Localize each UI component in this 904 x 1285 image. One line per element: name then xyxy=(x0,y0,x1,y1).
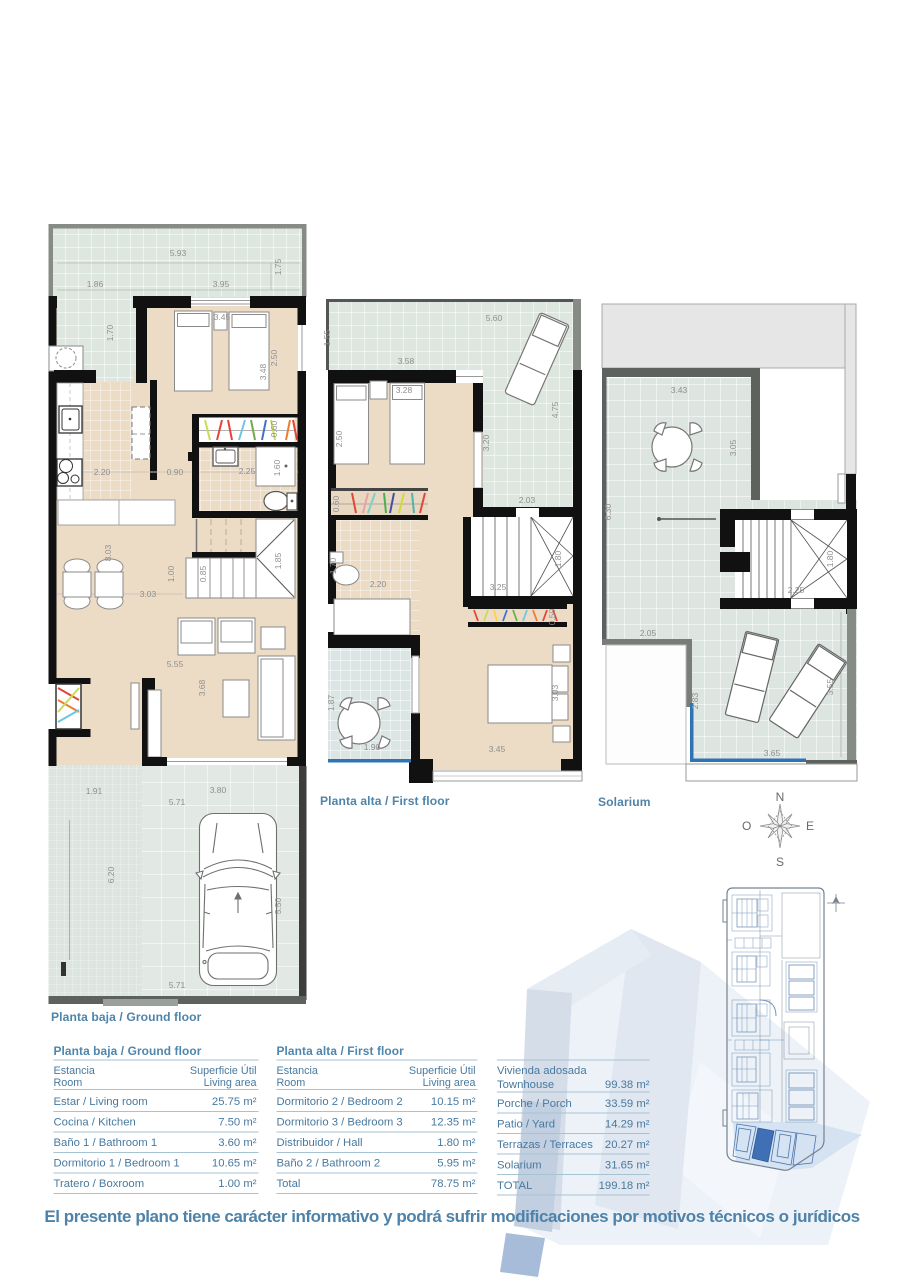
svg-text:3.48: 3.48 xyxy=(258,363,268,380)
svg-text:Terrazas / Terraces: Terrazas / Terraces xyxy=(497,1139,593,1151)
svg-text:3.65: 3.65 xyxy=(764,748,781,758)
svg-text:3.25: 3.25 xyxy=(490,582,507,592)
svg-text:7.50 m²: 7.50 m² xyxy=(218,1117,257,1129)
svg-text:3.68: 3.68 xyxy=(197,679,207,696)
svg-text:3.45: 3.45 xyxy=(214,312,231,322)
svg-text:Baño 2 / Bathroom 2: Baño 2 / Bathroom 2 xyxy=(277,1158,381,1170)
svg-text:Porche / Porch: Porche / Porch xyxy=(497,1098,572,1110)
svg-text:0.90: 0.90 xyxy=(167,467,184,477)
svg-text:1.80: 1.80 xyxy=(825,550,835,567)
svg-text:20.27 m²: 20.27 m² xyxy=(605,1139,650,1151)
svg-text:Room: Room xyxy=(54,1077,83,1089)
svg-text:Room: Room xyxy=(277,1077,306,1089)
svg-text:Superficie Útil: Superficie Útil xyxy=(409,1064,476,1077)
svg-text:4.75: 4.75 xyxy=(550,401,560,418)
svg-text:Baño 1 / Bathroom 1: Baño 1 / Bathroom 1 xyxy=(54,1137,158,1149)
svg-text:5.55: 5.55 xyxy=(167,659,184,669)
svg-text:3.05: 3.05 xyxy=(728,439,738,456)
svg-text:10.15 m²: 10.15 m² xyxy=(431,1096,476,1108)
svg-text:1.70: 1.70 xyxy=(328,557,338,574)
svg-text:Estar / Living room: Estar / Living room xyxy=(54,1096,148,1108)
svg-text:3.80: 3.80 xyxy=(210,785,227,795)
svg-text:5.60: 5.60 xyxy=(486,313,503,323)
svg-text:12.35 m²: 12.35 m² xyxy=(431,1117,476,1129)
svg-text:Cocina / Kitchen: Cocina / Kitchen xyxy=(54,1117,136,1129)
svg-text:1.85: 1.85 xyxy=(273,552,283,569)
svg-text:3.03: 3.03 xyxy=(550,684,560,701)
svg-text:1.90: 1.90 xyxy=(364,742,381,752)
svg-text:Dormitorio 3 / Bedroom 3: Dormitorio 3 / Bedroom 3 xyxy=(277,1117,403,1129)
svg-text:Dormitorio 1 / Bedroom 1: Dormitorio 1 / Bedroom 1 xyxy=(54,1158,180,1170)
svg-text:0.60: 0.60 xyxy=(269,420,279,437)
svg-text:Superficie Útil: Superficie Útil xyxy=(190,1064,257,1077)
svg-text:S: S xyxy=(776,855,784,869)
svg-text:25.75 m²: 25.75 m² xyxy=(212,1096,257,1108)
svg-text:5.50: 5.50 xyxy=(273,897,283,914)
svg-text:3.45: 3.45 xyxy=(489,744,506,754)
svg-text:Solarium: Solarium xyxy=(497,1160,542,1172)
svg-text:5.95 m²: 5.95 m² xyxy=(437,1158,476,1170)
svg-text:El presente plano tiene caráct: El presente plano tiene carácter informa… xyxy=(44,1207,859,1226)
svg-text:5.93: 5.93 xyxy=(170,248,187,258)
svg-text:0.85: 0.85 xyxy=(198,565,208,582)
svg-text:0.60: 0.60 xyxy=(331,495,341,512)
svg-text:2.50: 2.50 xyxy=(334,430,344,447)
svg-text:5.71: 5.71 xyxy=(169,797,186,807)
svg-text:Planta alta / First floor: Planta alta / First floor xyxy=(320,794,450,808)
svg-text:Planta baja / Ground floor: Planta baja / Ground floor xyxy=(51,1010,202,1024)
svg-text:Dormitorio 2 / Bedroom 2: Dormitorio 2 / Bedroom 2 xyxy=(277,1096,403,1108)
svg-text:2.25: 2.25 xyxy=(239,466,256,476)
svg-text:2.25: 2.25 xyxy=(788,585,805,595)
svg-text:O: O xyxy=(742,819,751,833)
svg-text:1.55: 1.55 xyxy=(322,329,332,346)
svg-text:Estancia: Estancia xyxy=(277,1065,318,1077)
svg-text:2.50: 2.50 xyxy=(269,349,279,366)
svg-text:Total: Total xyxy=(277,1178,301,1190)
svg-text:Patio / Yard: Patio / Yard xyxy=(497,1119,555,1131)
svg-text:1.86: 1.86 xyxy=(87,279,104,289)
svg-text:2.20: 2.20 xyxy=(370,579,387,589)
svg-text:3.60 m²: 3.60 m² xyxy=(218,1137,257,1149)
svg-text:3.58: 3.58 xyxy=(398,356,415,366)
svg-text:Townhouse: Townhouse xyxy=(497,1079,554,1091)
svg-text:1.75: 1.75 xyxy=(273,258,283,275)
svg-text:1.80 m²: 1.80 m² xyxy=(437,1137,476,1149)
svg-text:8.03: 8.03 xyxy=(103,544,113,561)
svg-text:Distribuidor / Hall: Distribuidor / Hall xyxy=(277,1137,363,1149)
svg-text:2.05: 2.05 xyxy=(640,628,657,638)
svg-text:3.03: 3.03 xyxy=(140,589,157,599)
svg-text:Tratero / Boxroom: Tratero / Boxroom xyxy=(54,1178,145,1190)
svg-text:6.20: 6.20 xyxy=(106,866,116,883)
svg-text:1.60: 1.60 xyxy=(272,459,282,476)
svg-text:1.00: 1.00 xyxy=(166,565,176,582)
svg-text:TOTAL: TOTAL xyxy=(497,1180,532,1192)
svg-text:14.29 m²: 14.29 m² xyxy=(605,1119,650,1131)
svg-text:3.20: 3.20 xyxy=(481,434,491,451)
svg-text:3.95: 3.95 xyxy=(213,279,230,289)
svg-text:Planta alta / First floor: Planta alta / First floor xyxy=(277,1044,405,1058)
svg-text:Planta baja / Ground floor: Planta baja / Ground floor xyxy=(54,1044,202,1058)
svg-text:6.30: 6.30 xyxy=(603,503,613,520)
svg-text:99.38 m²: 99.38 m² xyxy=(605,1079,650,1091)
svg-text:1.87: 1.87 xyxy=(326,694,336,711)
svg-text:Living area: Living area xyxy=(423,1077,476,1089)
svg-text:3.55: 3.55 xyxy=(825,678,835,695)
svg-text:1.70: 1.70 xyxy=(105,324,115,341)
svg-text:3.28: 3.28 xyxy=(396,385,413,395)
svg-text:Vivienda adosada: Vivienda adosada xyxy=(497,1065,587,1077)
svg-text:78.75 m²: 78.75 m² xyxy=(431,1178,476,1190)
svg-text:31.65 m²: 31.65 m² xyxy=(605,1160,650,1172)
svg-text:Solarium: Solarium xyxy=(598,795,651,809)
svg-text:2.20: 2.20 xyxy=(94,467,111,477)
svg-text:2.03: 2.03 xyxy=(519,495,536,505)
svg-text:N: N xyxy=(776,790,785,804)
svg-text:199.18 m²: 199.18 m² xyxy=(599,1180,650,1192)
svg-text:3.43: 3.43 xyxy=(671,385,688,395)
svg-text:5.71: 5.71 xyxy=(169,980,186,990)
svg-text:E: E xyxy=(806,819,814,833)
svg-text:Estancia: Estancia xyxy=(54,1065,95,1077)
svg-text:Living area: Living area xyxy=(204,1077,257,1089)
svg-text:0.50: 0.50 xyxy=(547,608,557,625)
svg-text:1.91: 1.91 xyxy=(86,786,103,796)
svg-text:2.83: 2.83 xyxy=(690,692,700,709)
svg-text:33.59 m²: 33.59 m² xyxy=(605,1098,650,1110)
svg-text:1.80: 1.80 xyxy=(553,550,563,567)
svg-text:10.65 m²: 10.65 m² xyxy=(212,1158,257,1170)
svg-text:1.00 m²: 1.00 m² xyxy=(218,1178,257,1190)
